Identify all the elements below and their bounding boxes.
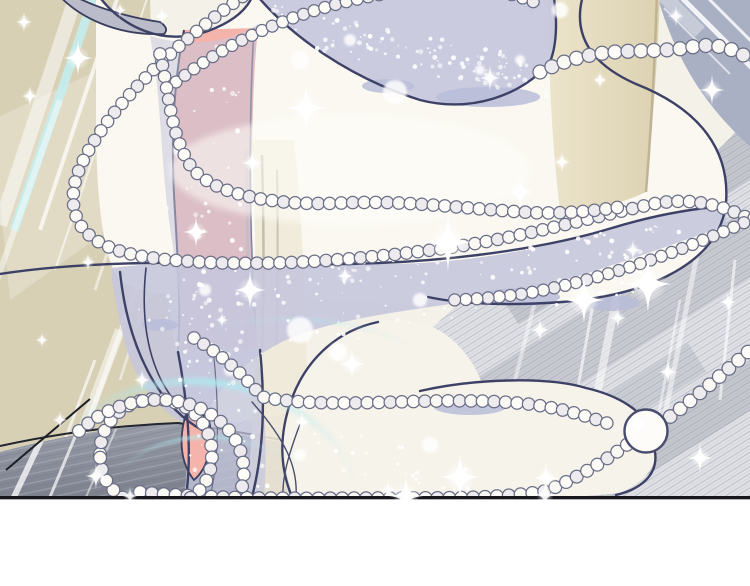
large-pearl [625, 410, 668, 453]
panel-border-line [0, 496, 750, 499]
white-gutter [0, 499, 750, 586]
tan-pillar [548, 0, 660, 210]
comic-panel [0, 0, 750, 586]
illustration-canvas [0, 0, 750, 586]
